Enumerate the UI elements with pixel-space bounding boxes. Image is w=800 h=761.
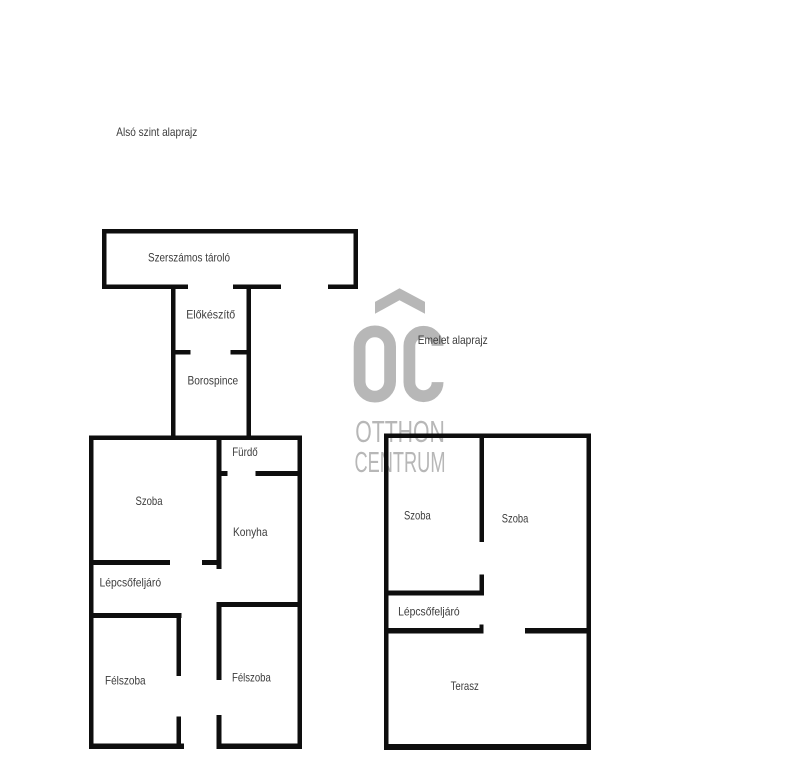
svg-text:Konyha: Konyha [233,525,268,539]
svg-text:Lépcsőfeljáró: Lépcsőfeljáró [100,576,162,590]
svg-text:Emelet alaprajz: Emelet alaprajz [418,333,488,347]
svg-text:Szoba: Szoba [404,509,431,523]
svg-text:CENTRUM: CENTRUM [355,447,446,479]
svg-text:Szoba: Szoba [502,512,529,526]
svg-text:Alsó szint alaprajz: Alsó szint alaprajz [116,125,197,139]
svg-text:Szerszámos tároló: Szerszámos tároló [148,251,230,265]
svg-text:Lépcsőfeljáró: Lépcsőfeljáró [398,605,460,619]
svg-text:Terasz: Terasz [451,679,479,693]
svg-text:OTTHON: OTTHON [355,416,445,449]
svg-text:Fürdő: Fürdő [232,445,258,459]
svg-text:Félszoba: Félszoba [232,671,271,685]
svg-text:Szoba: Szoba [136,494,163,508]
svg-text:Borospince: Borospince [188,374,239,388]
svg-text:Előkészítő: Előkészítő [186,308,235,322]
svg-text:Félszoba: Félszoba [105,673,146,687]
